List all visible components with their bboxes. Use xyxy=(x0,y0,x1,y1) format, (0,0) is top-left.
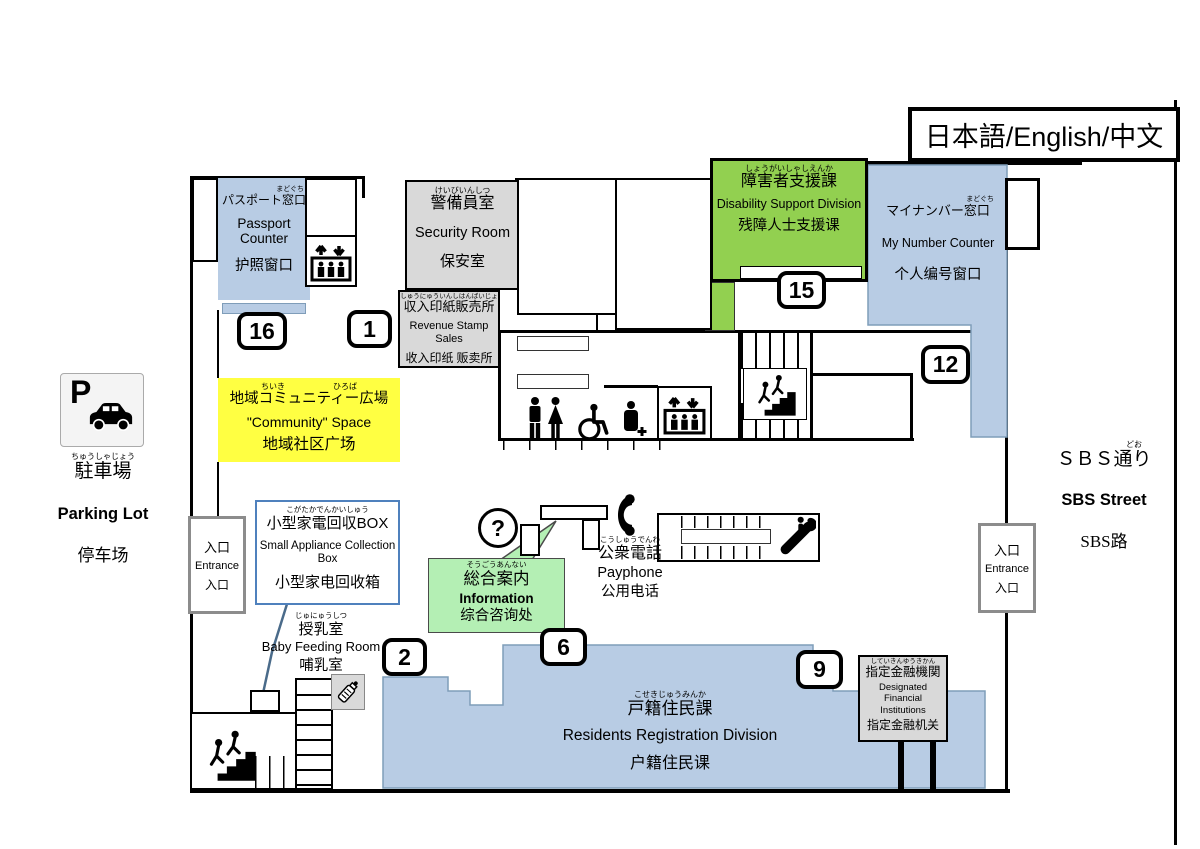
escalator-mid-bar xyxy=(681,529,771,544)
badge-residents-center: 6 xyxy=(540,628,587,666)
language-selector-label: 日本語/English/中文 xyxy=(925,115,1164,154)
escalator-icon xyxy=(772,515,816,559)
security-room-label: けいびいんしつ 警備員室 Security Room 保安室 xyxy=(407,186,518,272)
badge-revenue-stamp: 1 xyxy=(347,310,392,348)
toilet-stall-2 xyxy=(517,374,589,389)
toilet-men-icon xyxy=(527,396,543,440)
information-label: そうごうあんない 総合案内 Information 综合咨询处 xyxy=(430,561,563,625)
multipurpose-toilet-icon xyxy=(620,400,648,440)
escalator-treads-bottom xyxy=(681,546,771,559)
parking-label: ちゅうしゃじょう 駐車場 Parking Lot 停车场 xyxy=(44,452,162,566)
elevator-icon-core xyxy=(662,391,707,436)
entrance-right: 入口 Entrance 入口 xyxy=(978,523,1036,613)
core-counter-ticks xyxy=(503,441,685,450)
payphone-icon xyxy=(604,492,638,538)
floor-map: 入口 Entrance 入口 入口 Entrance 入口 P xyxy=(0,0,1200,849)
entrance-left-en: Entrance xyxy=(195,560,239,572)
disability-support-label: しょうがいしゃしえんか 障害者支援課 Disability Support Di… xyxy=(712,164,866,235)
toilet-stall-1 xyxy=(517,336,589,351)
badge-my-number: 12 xyxy=(921,345,970,384)
information-question-icon: ? xyxy=(478,508,518,548)
stairs-icon-bottom-left xyxy=(198,727,264,785)
door-box-east xyxy=(1005,178,1040,250)
sbs-street-label: どお ＳＢＳ通り SBS Street SBS路 xyxy=(1038,440,1170,552)
entrance-right-zh: 入口 xyxy=(995,579,1019,596)
parking-sign: P xyxy=(60,373,144,447)
escalator-treads-top xyxy=(681,516,771,528)
wheelchair-icon xyxy=(573,402,613,442)
appliance-box-label: こがたかでんかいしゅう 小型家電回収BOX Small Appliance Co… xyxy=(258,506,397,593)
info-desk-top xyxy=(540,505,608,520)
my-number-label: まどぐち マイナンバー窓口 My Number Counter 个人编号窗口 xyxy=(874,196,1002,284)
badge-passport: 16 xyxy=(237,312,287,350)
financial-leg-right xyxy=(930,742,936,790)
entrance-right-jp: 入口 xyxy=(994,540,1020,559)
elevator-icon xyxy=(309,239,353,283)
passport-label: まどぐち パスポート窓口 Passport Counter 护照窗口 xyxy=(220,186,308,275)
entrance-left: 入口 Entrance 入口 xyxy=(188,516,246,614)
lobby-room-a xyxy=(517,178,617,315)
badge-residents-left: 2 xyxy=(382,638,427,676)
entrance-left-jp: 入口 xyxy=(204,537,230,556)
appliance-box-location xyxy=(250,690,280,712)
lobby-room-b xyxy=(615,178,712,330)
baby-bottle-icon xyxy=(333,676,363,708)
car-icon xyxy=(85,398,137,434)
entrance-left-zh: 入口 xyxy=(205,576,229,593)
elevator-room-divider xyxy=(305,235,357,237)
payphone-label: こうしゅうでんわ 公衆電話 Payphone 公用电话 xyxy=(584,536,676,600)
badge-residents-right: 9 xyxy=(796,650,843,689)
language-selector: 日本語/English/中文 xyxy=(908,107,1180,162)
financial-leg-left xyxy=(898,742,904,790)
stairs-icon-core xyxy=(748,372,803,419)
residents-registration-label: こせきじゅうみんか 戸籍住民課 Residents Registration D… xyxy=(500,690,840,773)
revenue-stamp-label: しゅうにゅういんしはんばいじょ 収入印紙販売所 Revenue Stamp Sa… xyxy=(400,293,498,365)
entrance-right-en: Entrance xyxy=(985,563,1029,575)
community-space-label: ちいき ひろば 地域コミュニティー広場 "Community" Space 地域… xyxy=(220,382,398,454)
badge-disability: 15 xyxy=(777,271,826,309)
financial-institutions-label: していきんゆうきかん 指定金融機関 Designated Financial I… xyxy=(861,658,945,733)
room-top-left xyxy=(192,178,218,262)
info-desk-left xyxy=(520,524,540,556)
baby-room-label: じゅにゅうしつ 授乳室 Baby Feeding Room 哺乳室 xyxy=(262,612,380,674)
stair-treads-bottom-left xyxy=(297,682,331,786)
toilet-women-icon xyxy=(546,396,565,440)
